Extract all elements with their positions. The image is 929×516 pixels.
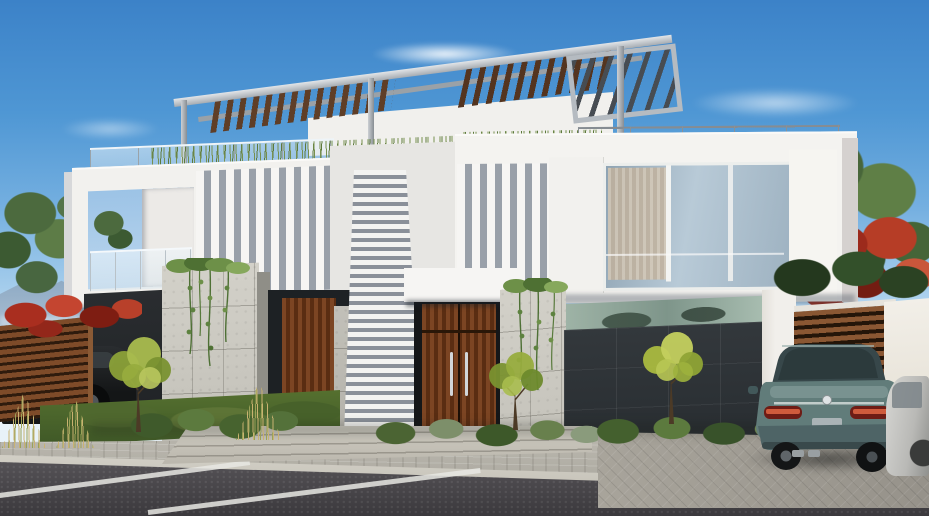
architectural-render bbox=[0, 0, 929, 516]
door-handle-right bbox=[465, 352, 468, 396]
window-curtain bbox=[608, 168, 666, 280]
teal-sedan bbox=[748, 338, 906, 474]
upper-mid-wall bbox=[549, 157, 604, 293]
window-mullion bbox=[728, 165, 733, 281]
pergola-overhang-frame bbox=[566, 44, 683, 124]
vertical-fins-right bbox=[457, 163, 549, 284]
ornamental-tree bbox=[98, 326, 178, 434]
silver-car-partial bbox=[886, 376, 929, 476]
pergola-post-3 bbox=[617, 46, 624, 134]
window-rail bbox=[606, 253, 784, 256]
window-mullion bbox=[666, 165, 671, 281]
door-handle-left bbox=[450, 352, 453, 396]
cloud-icon bbox=[60, 118, 160, 140]
cloud-icon bbox=[690, 88, 860, 118]
car-wheel-arch bbox=[900, 436, 929, 470]
ornamental-tree bbox=[478, 344, 552, 432]
door-top-rail bbox=[422, 330, 496, 333]
ornamental-tree bbox=[630, 322, 712, 426]
car-window bbox=[892, 382, 922, 408]
